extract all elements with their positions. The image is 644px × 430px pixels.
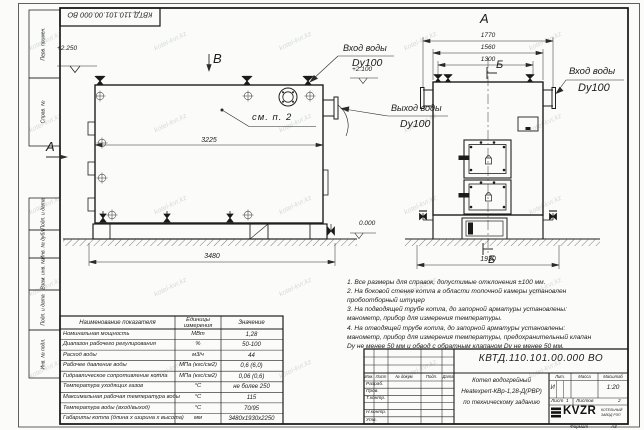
spec-cell: Максимальная рабочая температура воды [63, 395, 173, 401]
spec-cell: 3480х1930х2250 [222, 416, 281, 422]
spec-cell: Температура уходящих газов [63, 384, 173, 390]
spec-cell: Температура воды (вход/выход) [63, 406, 173, 412]
spec-cell: 44 [222, 353, 281, 359]
spec-cell: не более 250 [222, 384, 281, 390]
spec-cell: мм [176, 416, 220, 422]
spec-cell: Диапазон рабочего регулирования [63, 342, 173, 348]
spec-cell: 0,06 (0,6) [222, 374, 281, 380]
spec-cell: °С [176, 395, 220, 401]
spec-cell: Гидравлическое сопротивление котла [63, 374, 173, 380]
spec-cell: °С [176, 406, 220, 412]
spec-cell: 70/95 [222, 406, 281, 412]
spec-cell: МПа (кгс/см2) [176, 374, 220, 380]
spec-cell: Номинальная мощность [63, 332, 173, 338]
spec-cell: Рабочее давление воды [63, 363, 173, 369]
spec-cell: м3/ч [176, 353, 220, 359]
spec-cell: 0,6 (6,0) [222, 363, 281, 369]
spec-cell: 115 [222, 395, 281, 401]
spec-cell: °С [176, 384, 220, 390]
spec-cell: МПа (кгс/см2) [176, 363, 220, 369]
spec-cell: МВт [176, 332, 220, 338]
spec-cell: 1,28 [222, 332, 281, 338]
spec-cell: Габариты котла (длина х ширина х высота) [63, 416, 173, 422]
drawing-sheet: kotel-kvr.kzkotel-kvr.kzkotel-kvr.kzkote… [0, 0, 644, 430]
spec-cell: Расход воды [63, 353, 173, 359]
spec-cell: 50-100 [222, 342, 281, 348]
spec-table-values: Номинальная мощностьМВт1,28Диапазон рабо… [0, 0, 644, 430]
spec-cell: % [176, 342, 220, 348]
